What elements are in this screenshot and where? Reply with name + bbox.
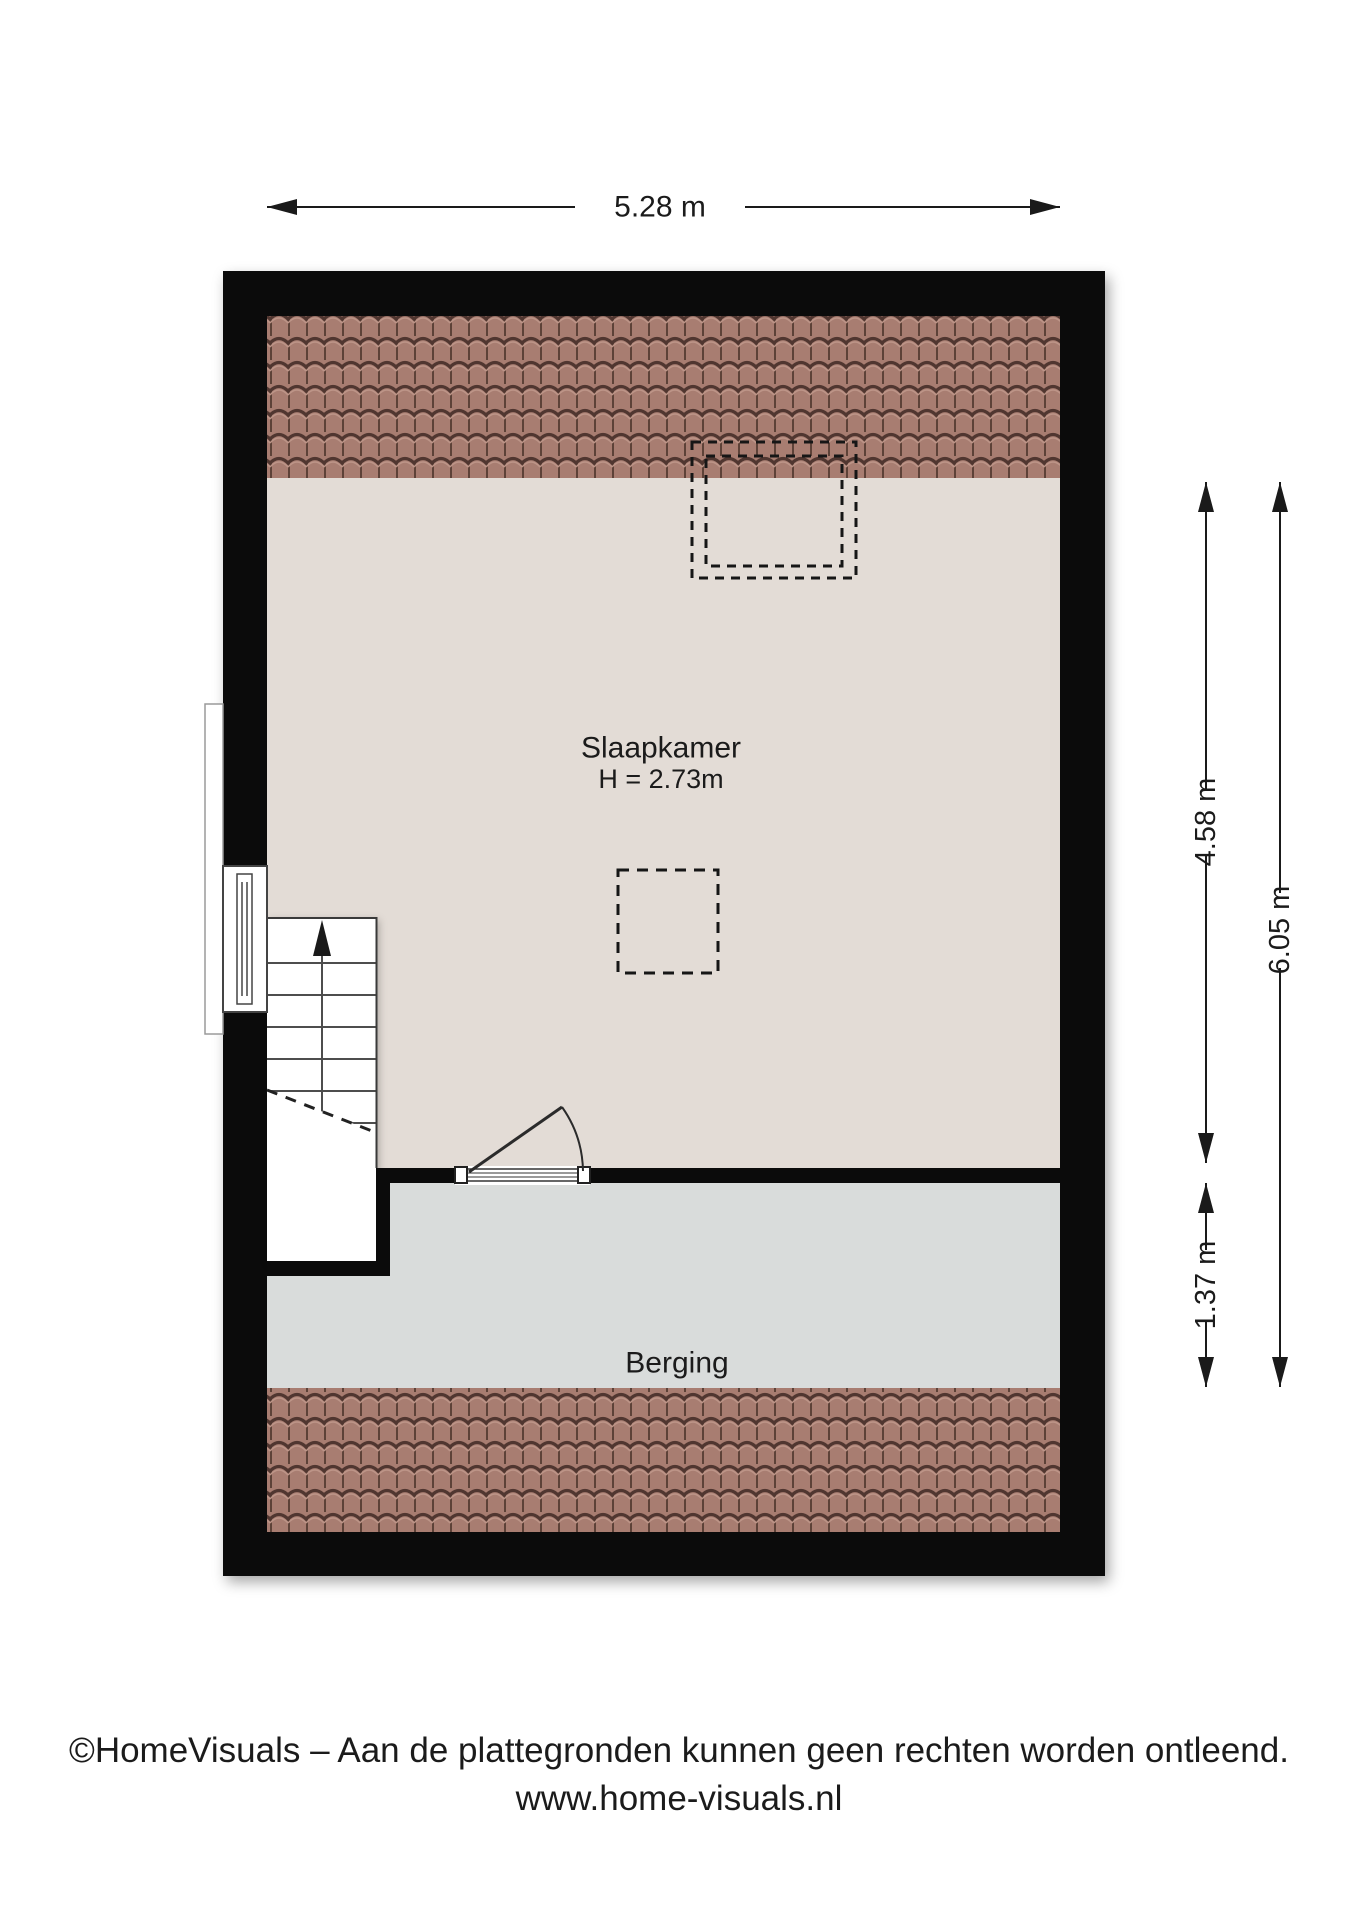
left-wall-sill xyxy=(205,704,223,1034)
wall-stairwell-right xyxy=(376,1168,390,1276)
dimension-top-width-label: 5.28 m xyxy=(614,191,706,224)
berging-label: Berging xyxy=(625,1347,728,1380)
slaapkamer-ceiling-height-label: H = 2.73m xyxy=(598,764,723,794)
arrowhead-down-icon xyxy=(1198,1357,1214,1387)
arrowhead-up-icon xyxy=(1272,482,1288,512)
footer-website: www.home-visuals.nl xyxy=(515,1779,843,1818)
window-left-wall xyxy=(223,866,267,1012)
arrowhead-up-icon xyxy=(1198,482,1214,512)
door-threshold xyxy=(467,1169,578,1181)
dimension-berging-depth-label: 1.37 m xyxy=(1190,1241,1222,1330)
slaapkamer-floor xyxy=(267,478,1060,1168)
dimension-total-depth: 6.05 m xyxy=(1264,482,1296,1387)
arrowhead-up-icon xyxy=(1198,1183,1214,1213)
footer-copyright: ©HomeVisuals – Aan de plattegronden kunn… xyxy=(69,1731,1289,1770)
slaapkamer-label: Slaapkamer xyxy=(581,732,741,765)
door-jamb-left xyxy=(455,1167,467,1183)
arrowhead-left-icon xyxy=(267,199,297,215)
dimension-total-depth-label: 6.05 m xyxy=(1264,886,1296,975)
window-glass-frame xyxy=(237,874,252,1004)
floorplan-page: 5.28 m xyxy=(0,0,1358,1920)
dimension-top-width: 5.28 m xyxy=(267,191,1060,224)
dimension-slaapkamer-depth-label: 4.58 m xyxy=(1190,778,1222,867)
dimension-berging-depth: 1.37 m xyxy=(1190,1183,1222,1387)
roof-strip-bottom xyxy=(267,1388,1060,1532)
dimension-slaapkamer-depth: 4.58 m xyxy=(1190,482,1222,1163)
arrowhead-down-icon xyxy=(1198,1133,1214,1163)
roof-strip-top xyxy=(267,316,1060,478)
door-jamb-right xyxy=(578,1167,590,1183)
staircase xyxy=(267,917,377,1261)
floorplan-drawing: 5.28 m xyxy=(0,0,1358,1920)
arrowhead-right-icon xyxy=(1030,199,1060,215)
footer: ©HomeVisuals – Aan de plattegronden kunn… xyxy=(69,1731,1289,1818)
arrowhead-down-icon xyxy=(1272,1357,1288,1387)
wall-stairwell-bottom xyxy=(267,1261,390,1276)
